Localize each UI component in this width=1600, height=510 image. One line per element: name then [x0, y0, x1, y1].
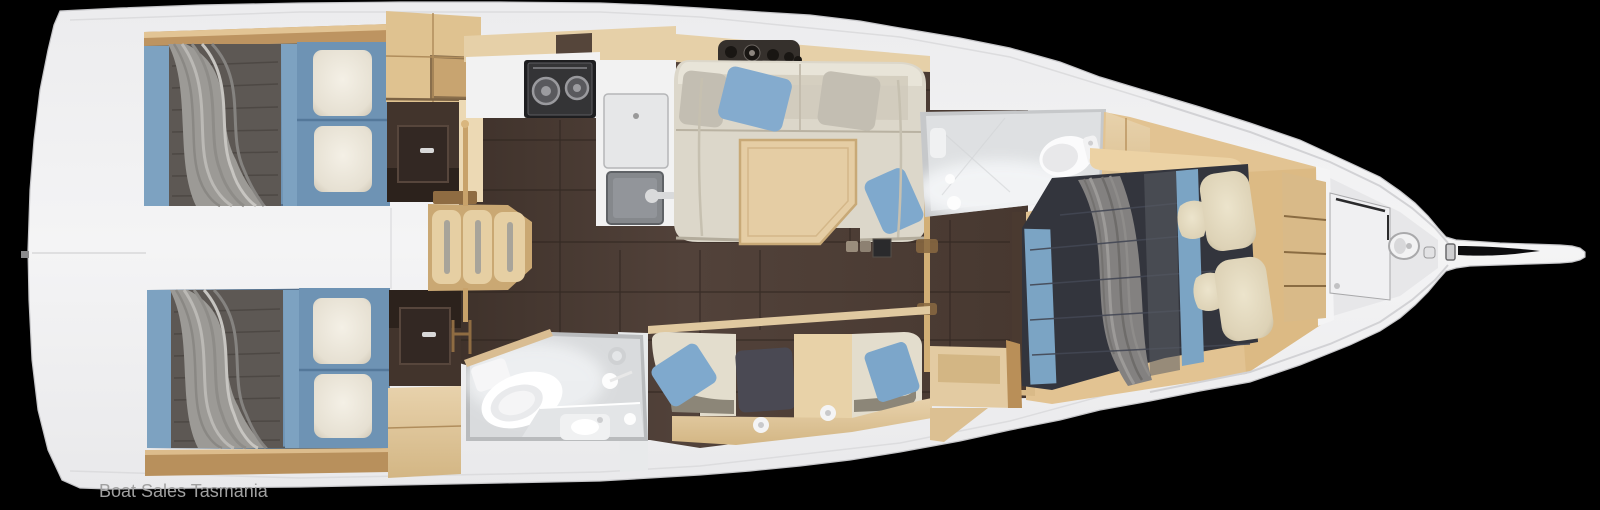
- svg-text:Boat Sales Tasmania: Boat Sales Tasmania: [99, 481, 269, 501]
